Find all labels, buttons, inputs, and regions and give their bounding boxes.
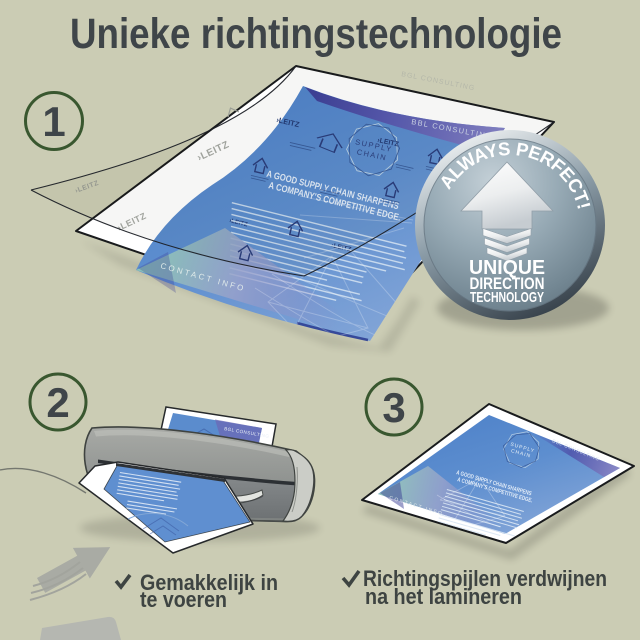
svg-text:TECHNOLOGY: TECHNOLOGY: [470, 289, 544, 306]
svg-text:1: 1: [42, 98, 65, 145]
svg-text:3: 3: [382, 384, 405, 431]
svg-text:2: 2: [46, 379, 69, 426]
svg-text:Unieke richtingstechnologie: Unieke richtingstechnologie: [70, 10, 562, 58]
svg-text:te voeren: te voeren: [140, 587, 227, 612]
svg-text:na het lamineren: na het lamineren: [365, 584, 522, 609]
